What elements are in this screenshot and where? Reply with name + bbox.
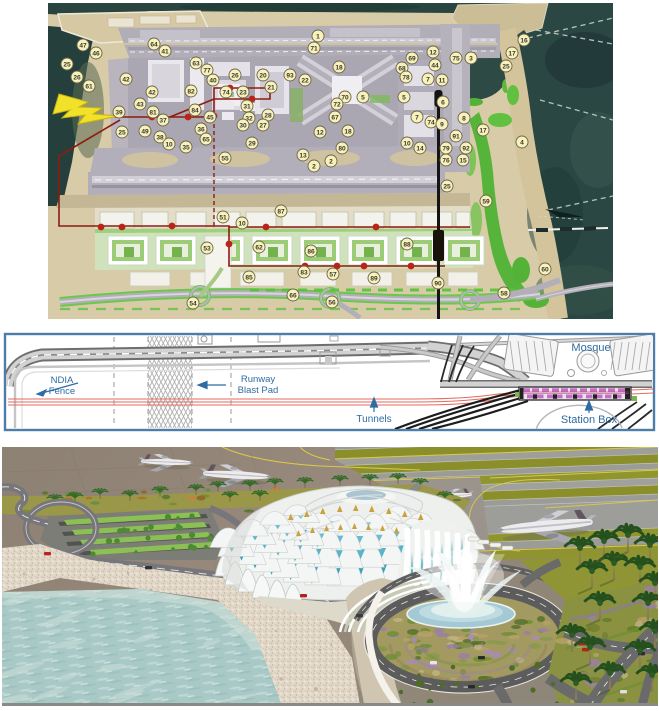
svg-text:40: 40 [209, 77, 217, 84]
svg-text:62: 62 [255, 244, 263, 251]
svg-text:37: 37 [159, 117, 167, 124]
svg-text:83: 83 [300, 269, 308, 276]
svg-text:90: 90 [434, 280, 442, 287]
svg-text:71: 71 [310, 45, 318, 52]
svg-text:4: 4 [520, 139, 524, 146]
svg-text:39: 39 [115, 109, 123, 116]
svg-text:26: 26 [231, 72, 239, 79]
svg-text:86: 86 [307, 248, 315, 255]
svg-text:76: 76 [442, 157, 450, 164]
svg-text:Tunnels: Tunnels [356, 414, 391, 425]
svg-text:NDIA: NDIA [51, 375, 74, 386]
svg-text:23: 23 [239, 89, 247, 96]
svg-text:93: 93 [286, 72, 294, 79]
svg-text:84: 84 [191, 107, 199, 114]
svg-text:65: 65 [202, 136, 210, 143]
svg-text:9: 9 [440, 121, 444, 128]
svg-text:57: 57 [329, 271, 337, 278]
svg-text:Runway: Runway [241, 374, 276, 385]
svg-text:2: 2 [312, 163, 316, 170]
svg-text:43: 43 [136, 101, 144, 108]
svg-text:44: 44 [431, 62, 439, 69]
svg-text:91: 91 [452, 133, 460, 140]
svg-text:49: 49 [141, 128, 149, 135]
svg-text:36: 36 [197, 126, 205, 133]
svg-text:14: 14 [416, 145, 424, 152]
svg-text:45: 45 [206, 114, 214, 121]
svg-text:25: 25 [118, 129, 126, 136]
svg-text:5: 5 [361, 94, 365, 101]
svg-text:13: 13 [299, 152, 307, 159]
svg-text:5: 5 [402, 94, 406, 101]
svg-text:25: 25 [443, 183, 451, 190]
svg-text:67: 67 [331, 114, 339, 121]
svg-text:63: 63 [192, 60, 200, 67]
svg-text:3: 3 [469, 55, 473, 62]
svg-text:38: 38 [156, 134, 164, 141]
svg-text:81: 81 [149, 109, 157, 116]
svg-text:17: 17 [479, 127, 487, 134]
svg-text:31: 31 [243, 103, 251, 110]
svg-text:92: 92 [462, 145, 470, 152]
svg-text:22: 22 [301, 77, 309, 84]
svg-text:69: 69 [408, 55, 416, 62]
svg-text:41: 41 [161, 48, 169, 55]
svg-text:12: 12 [429, 49, 437, 56]
svg-text:10: 10 [238, 220, 246, 227]
svg-text:60: 60 [541, 266, 549, 273]
svg-text:56: 56 [328, 299, 336, 306]
svg-text:70: 70 [341, 94, 349, 101]
svg-text:1: 1 [316, 33, 320, 40]
svg-text:88: 88 [403, 241, 411, 248]
svg-text:72: 72 [333, 101, 341, 108]
svg-text:21: 21 [267, 84, 275, 91]
svg-text:82: 82 [187, 88, 195, 95]
svg-text:78: 78 [402, 74, 410, 81]
svg-text:87: 87 [277, 208, 285, 215]
svg-text:42: 42 [122, 76, 130, 83]
svg-text:80: 80 [338, 145, 346, 152]
svg-text:47: 47 [79, 42, 87, 49]
svg-text:Blast Pad: Blast Pad [238, 385, 279, 396]
svg-text:64: 64 [150, 41, 158, 48]
svg-text:12: 12 [316, 129, 324, 136]
svg-text:10: 10 [403, 140, 411, 147]
svg-text:54: 54 [189, 300, 197, 307]
svg-text:30: 30 [239, 122, 247, 129]
svg-text:58: 58 [500, 290, 508, 297]
svg-text:29: 29 [248, 140, 256, 147]
svg-text:28: 28 [264, 112, 272, 119]
svg-text:16: 16 [520, 37, 528, 44]
svg-text:15: 15 [459, 157, 467, 164]
svg-text:25: 25 [502, 63, 510, 70]
svg-text:25: 25 [63, 61, 71, 68]
svg-text:2: 2 [329, 158, 333, 165]
svg-text:75: 75 [452, 55, 460, 62]
svg-text:7: 7 [415, 114, 419, 121]
svg-text:Station Box: Station Box [561, 414, 618, 426]
svg-text:77: 77 [203, 67, 211, 74]
svg-text:26: 26 [73, 74, 81, 81]
svg-text:61: 61 [85, 83, 93, 90]
svg-text:51: 51 [219, 214, 227, 221]
svg-text:35: 35 [182, 144, 190, 151]
svg-text:46: 46 [92, 50, 100, 57]
svg-text:10: 10 [165, 141, 173, 148]
svg-text:7: 7 [426, 76, 430, 83]
svg-text:74: 74 [427, 119, 435, 126]
svg-text:Mosque: Mosque [571, 342, 610, 354]
svg-text:53: 53 [203, 245, 211, 252]
svg-text:6: 6 [441, 99, 445, 106]
svg-text:66: 66 [289, 292, 297, 299]
svg-text:85: 85 [245, 274, 253, 281]
svg-text:74: 74 [222, 89, 230, 96]
svg-text:18: 18 [344, 128, 352, 135]
svg-text:11: 11 [439, 77, 446, 84]
svg-text:20: 20 [259, 72, 267, 79]
svg-text:79: 79 [442, 145, 450, 152]
svg-text:89: 89 [370, 275, 378, 282]
svg-text:55: 55 [221, 155, 229, 162]
svg-text:42: 42 [148, 89, 156, 96]
svg-text:8: 8 [462, 115, 466, 122]
svg-text:17: 17 [508, 50, 516, 57]
svg-text:27: 27 [259, 122, 267, 129]
svg-text:59: 59 [482, 198, 490, 205]
svg-text:18: 18 [335, 64, 343, 71]
